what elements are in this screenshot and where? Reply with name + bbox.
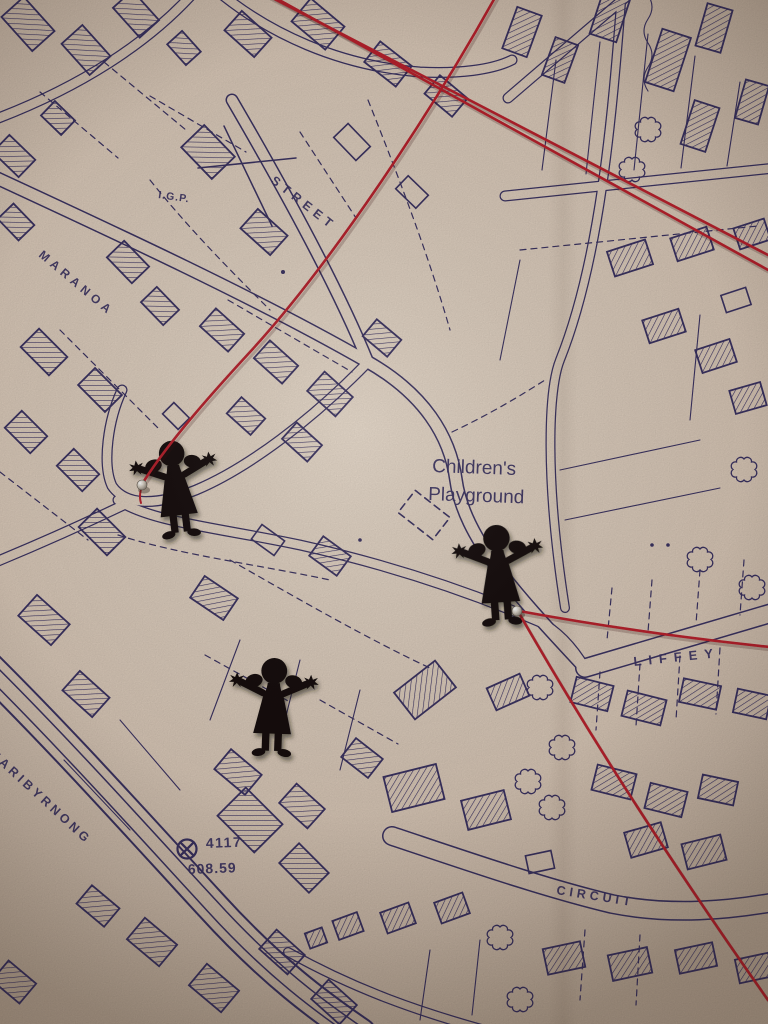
map-photo: MARANOA STREET I.G.P. Children's Playgro… — [0, 0, 768, 1024]
photo-vignette — [0, 0, 768, 1024]
